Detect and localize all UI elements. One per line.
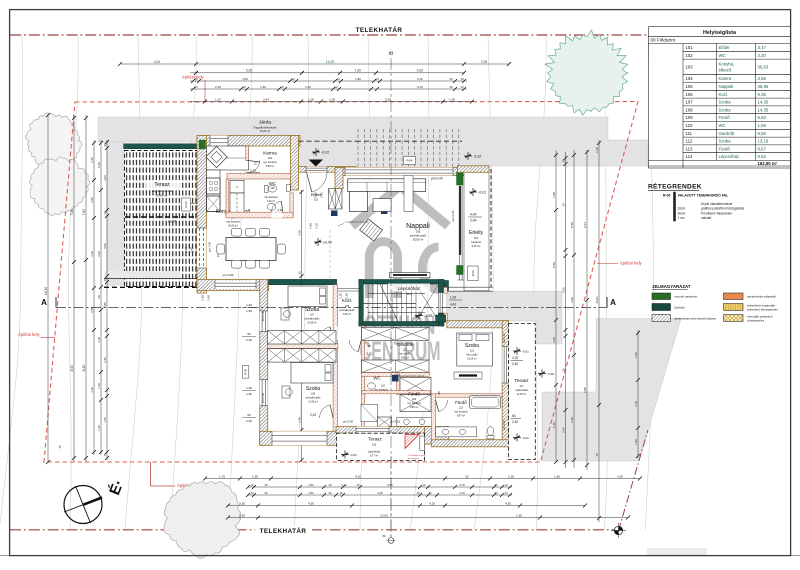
svg-text:1,45: 1,45 (449, 97, 455, 101)
svg-text:3,50: 3,50 (570, 297, 574, 303)
svg-text:8,67: 8,67 (758, 146, 767, 151)
svg-text:10: 10 (460, 85, 464, 89)
svg-text:10: 10 (504, 491, 508, 495)
svg-text:3,20 m²: 3,20 m² (267, 200, 275, 203)
svg-text:2,40: 2,40 (305, 85, 311, 89)
svg-text:TELEKHATÁR: TELEKHATÁR (356, 25, 403, 34)
svg-text:115: 115 (372, 443, 377, 446)
svg-text:4,42: 4,42 (450, 303, 456, 307)
svg-text:1,40: 1,40 (309, 223, 313, 229)
svg-text:2,35: 2,35 (481, 60, 488, 64)
svg-text:2,20: 2,20 (184, 247, 188, 253)
svg-text:építési hely: építési hely (620, 261, 642, 266)
svg-text:Szoba: Szoba (305, 307, 319, 313)
svg-text:6,77 m²: 6,77 m² (370, 455, 378, 458)
svg-text:101: 101 (686, 45, 694, 50)
svg-text:3,50: 3,50 (308, 491, 314, 495)
svg-text:10: 10 (356, 483, 360, 487)
svg-text:Fürdő: Fürdő (719, 146, 731, 151)
svg-text:2,40: 2,40 (561, 427, 565, 433)
svg-text:WC: WC (719, 123, 726, 128)
svg-text:-0,02: -0,02 (321, 150, 329, 154)
svg-text:RÉTEGRENDEK: RÉTEGRENDEK (648, 182, 702, 191)
svg-text:30: 30 (264, 483, 268, 487)
svg-text:10: 10 (561, 203, 565, 207)
svg-text:Fürdő: Fürdő (408, 392, 420, 397)
svg-text:30: 30 (561, 159, 565, 163)
svg-text:3,20: 3,20 (90, 251, 94, 257)
svg-text:laminált padló: laminált padló (306, 397, 321, 400)
svg-text:30: 30 (449, 85, 453, 89)
svg-text:6,31: 6,31 (583, 222, 587, 228)
svg-text:pm 0,00: pm 0,00 (261, 393, 265, 404)
svg-text:14,35: 14,35 (758, 107, 769, 112)
svg-text:30: 30 (264, 491, 268, 495)
svg-text:8,56: 8,56 (758, 131, 767, 136)
svg-text:14,81: 14,81 (595, 296, 599, 304)
svg-text:R-06: R-06 (471, 270, 475, 277)
svg-text:5,30: 5,30 (246, 69, 253, 73)
svg-text:10: 10 (194, 85, 198, 89)
svg-text:Gardrób: Gardrób (397, 342, 414, 347)
svg-text:104: 104 (686, 76, 694, 81)
svg-text:1,45: 1,45 (97, 425, 101, 431)
svg-text:1,37: 1,37 (215, 97, 221, 101)
svg-text:3,70: 3,70 (459, 491, 465, 495)
svg-text:reg. kerámia: reg. kerámia (226, 221, 240, 224)
svg-text:-0,01: -0,01 (478, 190, 486, 194)
svg-text:1,55: 1,55 (252, 474, 258, 478)
svg-text:00 Földszint: 00 Földszint (651, 38, 676, 43)
svg-text:30: 30 (103, 143, 107, 146)
svg-text:6,80: 6,80 (583, 387, 587, 393)
svg-text:2,00: 2,00 (103, 175, 107, 181)
svg-text:WC: WC (719, 53, 726, 58)
svg-text:Zsalukő: Zsalukő (674, 306, 685, 310)
svg-text:90: 90 (367, 344, 371, 348)
svg-text:10: 10 (336, 77, 340, 81)
svg-text:pm 0,00: pm 0,00 (502, 333, 506, 343)
svg-text:1,45: 1,45 (103, 417, 107, 423)
svg-text:1 cm: 1 cm (678, 216, 685, 220)
svg-text:2,25: 2,25 (552, 422, 556, 428)
svg-text:13,19 m²: 13,19 m² (467, 358, 477, 361)
svg-text:Szoba: Szoba (719, 107, 732, 112)
svg-text:13,19: 13,19 (758, 139, 769, 144)
svg-text:Fagyálló térburkolat: Fagyálló térburkolat (254, 126, 277, 130)
svg-text:R-06: R-06 (663, 194, 670, 198)
svg-text:5,40: 5,40 (314, 192, 318, 198)
svg-text:9,45 m²: 9,45 m² (472, 244, 481, 248)
svg-text:114: 114 (686, 154, 693, 159)
svg-text:5,55: 5,55 (385, 97, 391, 101)
svg-text:3,55: 3,55 (387, 483, 393, 487)
svg-text:113: 113 (686, 146, 693, 151)
svg-text:6,10: 6,10 (417, 77, 423, 81)
svg-text:1,49: 1,49 (595, 147, 599, 153)
svg-text:10: 10 (334, 85, 338, 89)
svg-text:laminált padló: laminált padló (340, 309, 355, 312)
svg-text:8,67 m²: 8,67 m² (457, 415, 465, 418)
svg-text:R-06: R-06 (184, 201, 188, 208)
svg-text:2,40: 2,40 (207, 295, 211, 301)
svg-text:Kerámia: Kerámia (471, 240, 481, 244)
svg-text:2,40: 2,40 (297, 417, 301, 423)
svg-text:1,20: 1,20 (339, 293, 343, 299)
svg-text:Konyha,: Konyha, (719, 61, 735, 66)
svg-text:114: 114 (407, 292, 412, 296)
svg-text:Erkély: Erkély (469, 230, 483, 236)
svg-text:reg. kerámia: reg. kerámia (263, 161, 277, 164)
svg-text:4,10: 4,10 (90, 387, 94, 393)
svg-text:Csapatkozási lehetőség: Csapatkozási lehetőség (345, 221, 369, 224)
svg-text:102: 102 (271, 187, 276, 190)
svg-text:2,10: 2,10 (345, 293, 349, 299)
svg-text:11,26 m²: 11,26 m² (517, 393, 526, 396)
svg-text:pm 0,00: pm 0,00 (451, 210, 455, 221)
svg-text:5,50: 5,50 (570, 222, 574, 228)
svg-text:104: 104 (268, 157, 273, 160)
svg-text:4,00: 4,00 (154, 60, 161, 64)
svg-text:3,50: 3,50 (308, 483, 314, 487)
svg-text:110: 110 (381, 385, 386, 388)
svg-text:hig. kerámia: hig. kerámia (264, 196, 278, 199)
svg-text:kéményhez: kéményhez (408, 458, 419, 460)
svg-text:10: 10 (242, 85, 246, 89)
svg-text:4,10: 4,10 (355, 474, 361, 478)
svg-text:116: 116 (474, 236, 479, 240)
svg-text:111: 111 (403, 348, 407, 352)
svg-text:reg. kerámia: reg. kerámia (454, 411, 468, 414)
svg-text:5,60: 5,60 (97, 162, 101, 168)
svg-text:Tisztítóajtó a szell.: Tisztítóajtó a szell. (408, 454, 426, 457)
svg-text:reg. kerámia: reg. kerámia (407, 402, 421, 405)
svg-text:2,40: 2,40 (470, 219, 477, 223)
svg-text:75: 75 (595, 453, 599, 457)
svg-text:1,80: 1,80 (355, 69, 362, 73)
svg-text:109: 109 (686, 115, 694, 120)
svg-text:Gardrób: Gardrób (719, 131, 735, 136)
svg-text:30: 30 (291, 77, 295, 81)
svg-text:6,82: 6,82 (758, 115, 767, 120)
svg-text:1,40: 1,40 (97, 383, 101, 389)
svg-text:35,95: 35,95 (758, 84, 769, 89)
svg-text:A: A (610, 298, 616, 307)
svg-text:3,30: 3,30 (239, 501, 245, 505)
svg-text:2,40: 2,40 (190, 247, 194, 253)
svg-text:10cm: 10cm (678, 207, 686, 211)
svg-text:106: 106 (686, 92, 694, 97)
svg-text:1,60: 1,60 (90, 157, 94, 163)
svg-text:10: 10 (416, 491, 420, 495)
svg-text:60: 60 (247, 332, 251, 336)
svg-text:pm 0,01: pm 0,01 (390, 420, 401, 424)
svg-text:5,50: 5,50 (561, 287, 565, 293)
svg-text:5,60: 5,60 (103, 243, 107, 249)
svg-text:2,10: 2,10 (250, 169, 256, 173)
svg-text:4,10: 4,10 (97, 337, 101, 343)
svg-text:Nappali: Nappali (406, 223, 430, 230)
svg-text:1,75: 1,75 (219, 474, 225, 478)
svg-text:3,30: 3,30 (239, 513, 245, 517)
svg-text:2,10: 2,10 (315, 223, 319, 229)
svg-text:109: 109 (412, 398, 417, 401)
svg-text:60: 60 (247, 413, 251, 417)
svg-text:108: 108 (686, 107, 694, 112)
svg-text:Fürdő: Fürdő (719, 115, 731, 120)
svg-text:A: A (41, 298, 47, 307)
svg-text:16,03 m²: 16,03 m² (260, 129, 270, 133)
svg-text:2,40: 2,40 (570, 417, 574, 423)
svg-text:-0,01: -0,01 (350, 453, 357, 457)
svg-text:2,85: 2,85 (90, 307, 94, 313)
svg-text:2,40: 2,40 (320, 192, 324, 198)
svg-text:10: 10 (460, 77, 464, 81)
svg-text:lam. padló: lam. padló (466, 354, 478, 357)
svg-text:60: 60 (512, 414, 516, 418)
svg-text:107: 107 (686, 100, 694, 105)
svg-text:±0,02: ±0,02 (168, 220, 177, 224)
svg-text:vázkerámia teherhordó falazat: vázkerámia teherhordó falazat (674, 317, 716, 321)
svg-text:1,20: 1,20 (341, 483, 347, 487)
svg-text:13,05: 13,05 (380, 513, 388, 517)
svg-text:2,00: 2,00 (90, 197, 94, 203)
svg-text:20: 20 (97, 295, 101, 299)
svg-text:75: 75 (58, 445, 62, 449)
svg-text:2,40: 2,40 (246, 338, 252, 342)
svg-text:pm 0,00: pm 0,00 (343, 420, 354, 424)
svg-text:4,40: 4,40 (470, 213, 477, 217)
svg-text:30,63 m²: 30,63 m² (228, 225, 238, 228)
svg-text:1,20: 1,20 (246, 303, 252, 307)
svg-text:108: 108 (311, 393, 316, 396)
svg-text:76: 76 (254, 162, 258, 166)
svg-text:pm 0,00: pm 0,00 (431, 177, 443, 181)
svg-text:52: 52 (465, 474, 469, 478)
svg-text:4,30: 4,30 (617, 474, 623, 478)
svg-text:Lépcsőház: Lépcsőház (398, 286, 421, 291)
svg-text:R-06: R-06 (406, 159, 413, 163)
svg-text:Porotherm falazóelem: Porotherm falazóelem (701, 211, 733, 215)
svg-text:-0,01: -0,01 (522, 349, 529, 353)
svg-text:14,36 m²: 14,36 m² (308, 401, 318, 404)
svg-text:20: 20 (103, 278, 107, 281)
svg-text:5,56 m²: 5,56 m² (266, 165, 274, 168)
svg-text:14,35: 14,35 (758, 100, 769, 105)
svg-text:1,80: 1,80 (355, 77, 361, 81)
svg-text:9,35 m²: 9,35 m² (343, 313, 351, 316)
svg-text:30,63: 30,63 (758, 65, 769, 70)
svg-text:2,28: 2,28 (508, 474, 514, 478)
svg-text:JELMAGYARÁZAT: JELMAGYARÁZAT (652, 284, 691, 289)
svg-text:étkező: étkező (719, 68, 732, 73)
svg-text:laminált padló: laminált padló (305, 318, 320, 321)
svg-text:WC: WC (269, 181, 276, 186)
svg-text:Terasz: Terasz (154, 182, 170, 188)
svg-text:110: 110 (686, 123, 693, 128)
svg-text:2,10: 2,10 (310, 413, 316, 417)
svg-text:1,65: 1,65 (554, 474, 560, 478)
svg-text:monolit vasbeton: monolit vasbeton (674, 295, 698, 299)
svg-text:30cm: 30cm (678, 211, 686, 215)
svg-text:Kamra: Kamra (719, 76, 732, 81)
svg-text:102: 102 (686, 53, 694, 58)
svg-text:-0,01: -0,01 (522, 436, 529, 440)
svg-text:2,80: 2,80 (552, 192, 556, 198)
svg-text:30: 30 (494, 483, 498, 487)
svg-text:vázkerámia válaszfal: vázkerámia válaszfal (747, 295, 776, 299)
svg-text:2,70: 2,70 (634, 401, 638, 407)
svg-text:14,35 m²: 14,35 m² (307, 322, 317, 325)
svg-text:35,95 m²: 35,95 m² (413, 238, 424, 242)
svg-text:162,50 m²: 162,50 m² (758, 161, 778, 166)
svg-text:2,20: 2,20 (201, 295, 205, 301)
svg-text:8,56 m²: 8,56 m² (401, 357, 409, 360)
svg-text:1,60: 1,60 (516, 513, 522, 517)
svg-text:laminált padló: laminált padló (410, 234, 427, 238)
svg-text:111: 111 (686, 131, 693, 136)
svg-text:Lapburkolat: Lapburkolat (368, 451, 381, 454)
svg-text:5,50: 5,50 (552, 262, 556, 268)
svg-text:6,82 m²: 6,82 m² (410, 406, 418, 409)
svg-text:2,10: 2,10 (366, 352, 372, 356)
svg-text:10: 10 (280, 85, 284, 89)
svg-text:-3,32: -3,32 (473, 154, 481, 158)
svg-text:8,50: 8,50 (70, 365, 74, 372)
svg-text:6,10: 6,10 (417, 85, 423, 89)
svg-text:30: 30 (494, 491, 498, 495)
svg-text:2,40: 2,40 (103, 357, 107, 363)
svg-text:4,50: 4,50 (242, 77, 248, 81)
svg-text:27,87 m²: 27,87 m² (157, 194, 168, 198)
svg-text:10: 10 (103, 211, 107, 214)
svg-text:2,20: 2,20 (512, 356, 518, 360)
svg-text:75: 75 (103, 453, 107, 456)
svg-text:6,90: 6,90 (417, 69, 424, 73)
svg-text:3,20: 3,20 (758, 53, 767, 58)
svg-text:10: 10 (375, 77, 379, 81)
svg-text:B: B (389, 51, 395, 55)
svg-text:3,20: 3,20 (97, 251, 101, 257)
svg-text:4,50: 4,50 (505, 501, 511, 505)
svg-text:3,30: 3,30 (552, 337, 556, 343)
svg-text:4,70: 4,70 (297, 230, 301, 236)
svg-text:1,69: 1,69 (758, 123, 767, 128)
svg-text:4,25: 4,25 (429, 501, 435, 505)
svg-text:Járda: Járda (259, 120, 271, 126)
svg-text:Helyiséglista: Helyiséglista (703, 30, 737, 36)
svg-text:1,20: 1,20 (246, 386, 252, 390)
svg-text:-1,65: -1,65 (424, 314, 432, 318)
svg-text:90: 90 (437, 391, 441, 395)
svg-text:4,25: 4,25 (377, 491, 383, 495)
svg-text:8,52: 8,52 (758, 154, 767, 159)
svg-text:9,35: 9,35 (758, 92, 767, 97)
svg-text:105: 105 (416, 230, 421, 234)
svg-text:101: 101 (314, 199, 319, 202)
svg-text:2,40: 2,40 (512, 362, 518, 366)
svg-text:1,00: 1,00 (450, 296, 456, 300)
svg-text:4,30: 4,30 (308, 501, 314, 505)
svg-text:TELEKHATÁR: TELEKHATÁR (260, 526, 307, 535)
svg-text:Hőszivattyú beltéri egysége: Hőszivattyú beltéri egysége (398, 375, 426, 378)
svg-text:Lépcsőház: Lépcsőház (719, 154, 740, 159)
svg-text:Fürdő: Fürdő (455, 400, 467, 405)
svg-text:FALAZOTT TEHERHORDÓ FAL: FALAZOTT TEHERHORDÓ FAL (678, 193, 728, 198)
svg-text:1,60: 1,60 (260, 85, 266, 89)
svg-text:7,60: 7,60 (82, 209, 86, 216)
svg-text:20: 20 (297, 271, 301, 275)
svg-text:3,47: 3,47 (758, 45, 767, 50)
svg-text:3,70: 3,70 (459, 483, 465, 487)
svg-text:10: 10 (422, 483, 426, 487)
svg-text:1,65: 1,65 (634, 439, 638, 445)
svg-text:±0,00: ±0,00 (323, 240, 332, 244)
svg-text:113: 113 (459, 407, 464, 410)
svg-text:1,09: 1,09 (329, 97, 335, 101)
svg-text:112: 112 (470, 350, 475, 353)
svg-text:Szoba: Szoba (719, 100, 732, 105)
svg-text:103: 103 (686, 65, 694, 70)
svg-text:10: 10 (339, 491, 343, 495)
svg-text:112: 112 (686, 139, 693, 144)
svg-text:polisztirol hőszigetelés: polisztirol hőszigetelés (747, 308, 778, 312)
svg-text:60: 60 (382, 534, 386, 538)
svg-text:Kamra: Kamra (263, 151, 277, 156)
svg-text:Szoba: Szoba (465, 343, 479, 349)
svg-text:pm 0,00: pm 0,00 (502, 420, 506, 430)
svg-text:2,30: 2,30 (277, 208, 283, 212)
svg-text:-3,38: -3,38 (547, 372, 554, 376)
svg-text:Fagyálló burkolat: Fagyálló burkolat (152, 189, 173, 193)
svg-text:Dryvit vakolatrendszer: Dryvit vakolatrendszer (701, 202, 733, 206)
svg-text:Szoba: Szoba (306, 386, 320, 392)
svg-text:10: 10 (194, 77, 198, 81)
svg-text:építési hely: építési hely (18, 332, 40, 337)
svg-text:grafitos polisztirol hőszigete: grafitos polisztirol hőszigetelés (701, 207, 745, 211)
svg-text:1,50: 1,50 (246, 309, 252, 313)
svg-text:1,00: 1,00 (308, 97, 314, 101)
svg-text:WC: WC (374, 376, 381, 381)
svg-text:Szoba: Szoba (719, 139, 732, 144)
svg-text:7,80: 7,80 (70, 209, 74, 216)
svg-text:Lapburkolat: Lapburkolat (515, 389, 528, 392)
svg-text:lam. padló: lam. padló (399, 353, 411, 356)
svg-text:Terasz: Terasz (368, 437, 382, 442)
svg-text:10: 10 (328, 483, 332, 487)
svg-text:vakolat: vakolat (701, 216, 711, 220)
svg-text:10: 10 (250, 491, 254, 495)
svg-text:Terasz: Terasz (514, 378, 529, 384)
svg-text:30: 30 (449, 77, 453, 81)
svg-text:Előtér: Előtér (719, 45, 731, 50)
svg-text:2,85: 2,85 (103, 302, 107, 308)
svg-text:30: 30 (328, 491, 332, 495)
svg-text:pm 0,00: pm 0,00 (261, 311, 265, 322)
svg-text:pm 1,00: pm 1,00 (208, 242, 212, 253)
svg-text:2,40: 2,40 (246, 419, 252, 423)
svg-text:2,40: 2,40 (215, 85, 221, 89)
svg-text:Nappali: Nappali (719, 84, 734, 89)
svg-text:30: 30 (561, 368, 565, 372)
svg-text:16,30: 16,30 (44, 287, 48, 296)
svg-text:R-06: R-06 (244, 368, 248, 375)
svg-text:117: 117 (520, 385, 525, 388)
svg-text:2,25: 2,25 (634, 352, 638, 358)
svg-text:3,43: 3,43 (263, 97, 269, 101)
svg-text:pm 0,00: pm 0,00 (223, 273, 234, 277)
svg-text:8,30: 8,30 (82, 365, 86, 372)
